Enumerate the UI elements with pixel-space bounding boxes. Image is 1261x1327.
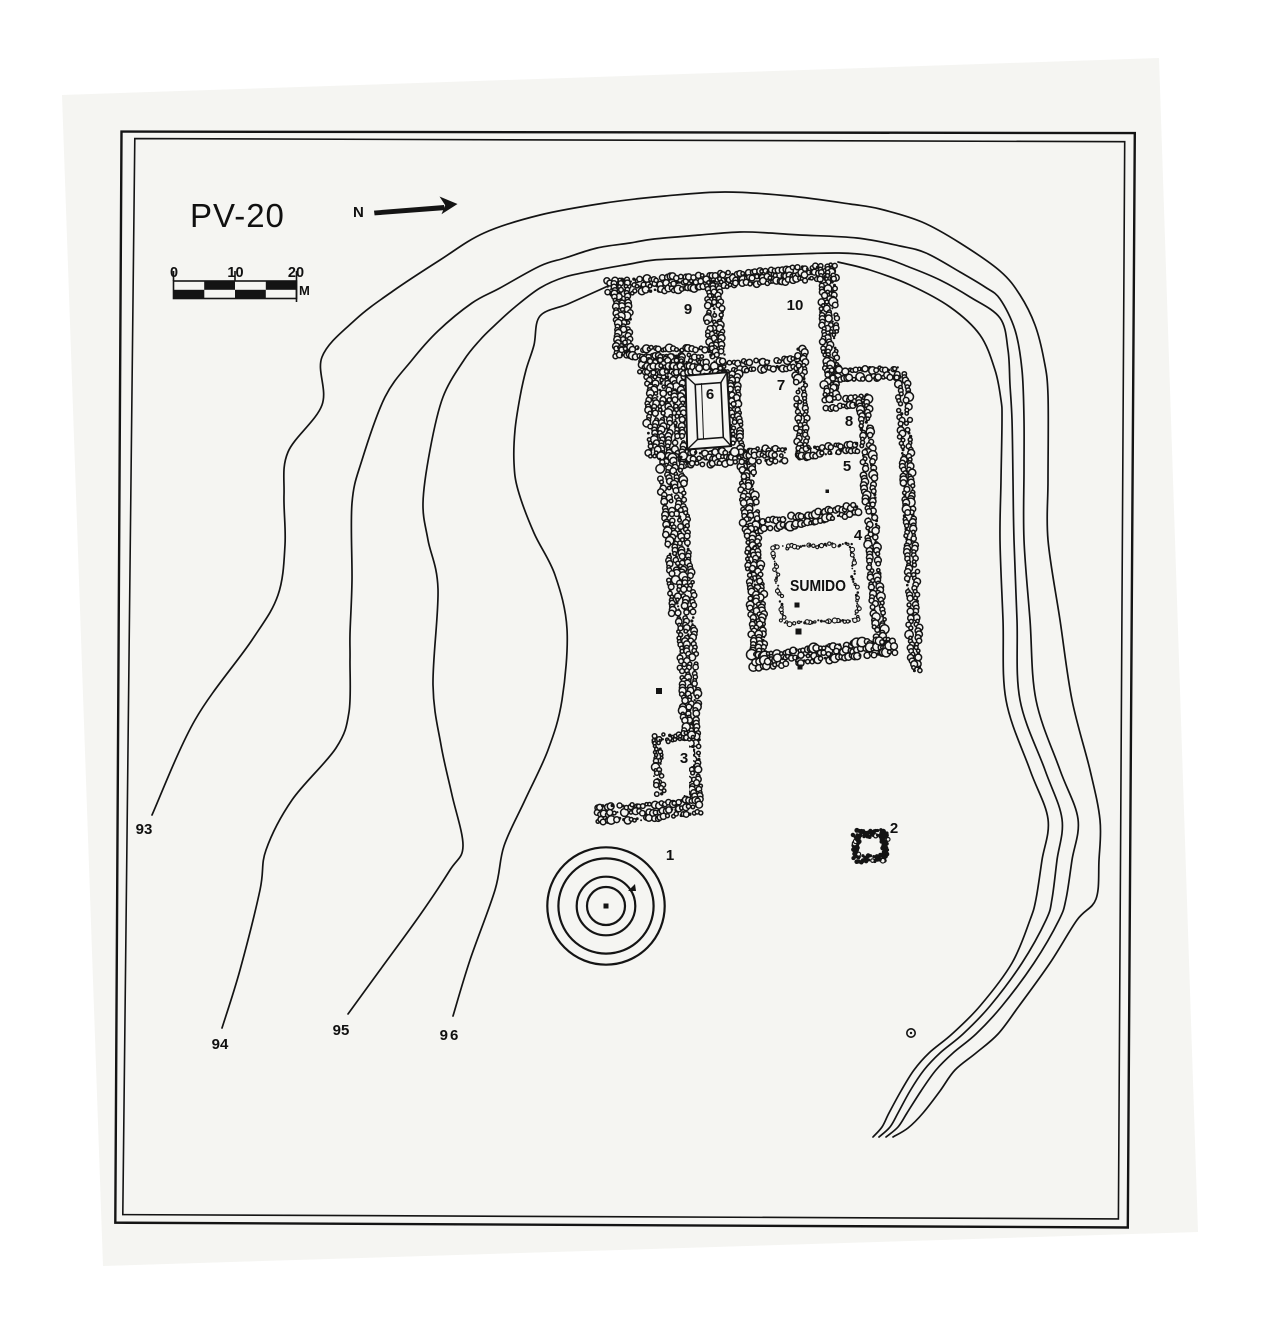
svg-text:8: 8 <box>845 413 853 430</box>
svg-text:20: 20 <box>288 265 304 281</box>
svg-text:3: 3 <box>680 750 688 767</box>
svg-text:N: N <box>353 204 364 221</box>
svg-text:SUMIDO: SUMIDO <box>790 578 846 595</box>
svg-text:9: 9 <box>684 301 692 318</box>
svg-text:96: 96 <box>440 1027 461 1044</box>
svg-text:2: 2 <box>890 820 898 837</box>
svg-text:94: 94 <box>212 1036 229 1053</box>
svg-text:M: M <box>299 283 310 298</box>
svg-text:7: 7 <box>777 377 785 394</box>
svg-text:5: 5 <box>843 458 851 475</box>
svg-text:4: 4 <box>854 527 863 544</box>
svg-text:95: 95 <box>333 1022 350 1039</box>
svg-text:10: 10 <box>787 297 804 314</box>
svg-text:10: 10 <box>227 265 243 281</box>
svg-text:93: 93 <box>136 821 153 838</box>
svg-text:0: 0 <box>170 265 178 281</box>
svg-text:1: 1 <box>666 847 674 864</box>
svg-text:6: 6 <box>706 386 714 403</box>
svg-text:PV-20: PV-20 <box>190 197 285 234</box>
